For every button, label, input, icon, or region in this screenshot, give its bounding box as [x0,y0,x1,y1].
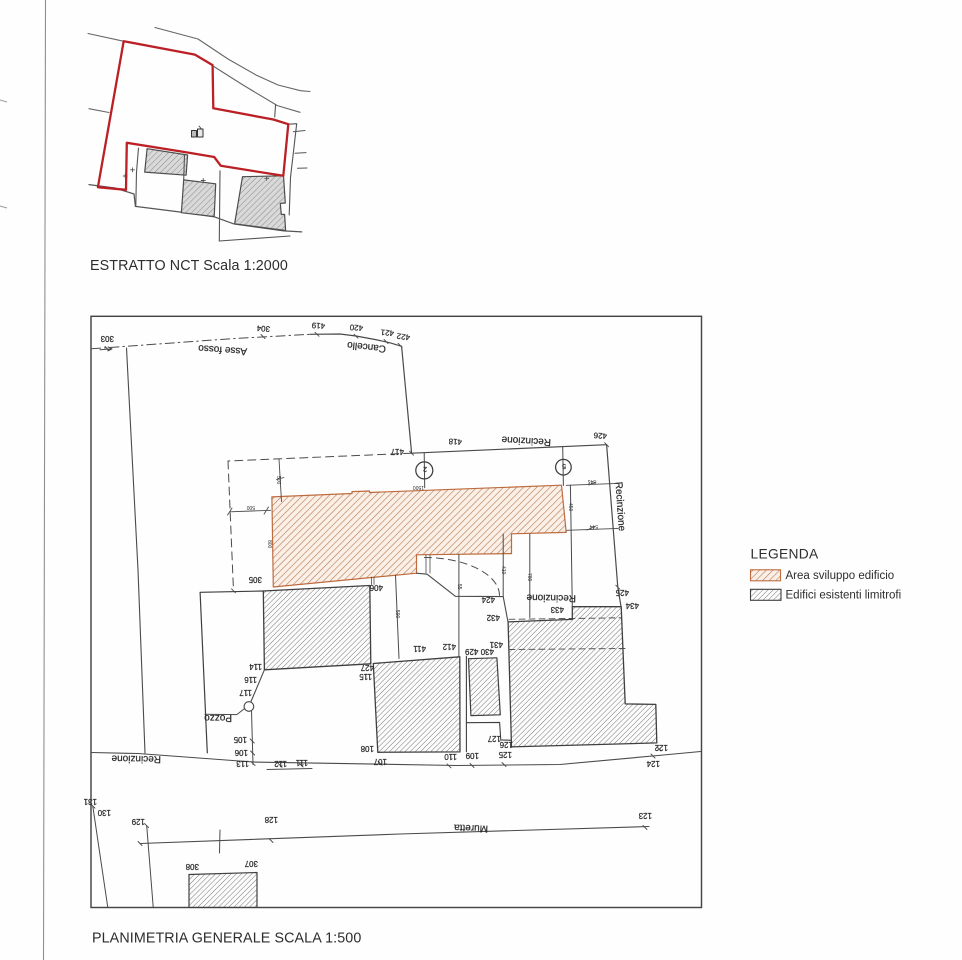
svg-text:425: 425 [615,588,629,597]
svg-text:Edifici esistenti limitrofi: Edifici esistenti limitrofi [786,590,902,602]
svg-text:115: 115 [359,672,372,681]
svg-text:303: 303 [100,334,114,343]
svg-text:304: 304 [256,324,270,334]
svg-text:128: 128 [264,815,278,824]
svg-text:114: 114 [249,662,262,671]
svg-text:123: 123 [638,811,652,820]
svg-text:430 429: 430 429 [465,647,494,656]
svg-text:419: 419 [311,321,325,331]
svg-text:117: 117 [239,688,252,697]
svg-text:107: 107 [373,757,387,766]
svg-text:Recinzione: Recinzione [526,592,576,604]
svg-text:411: 411 [413,644,426,653]
svg-text:424: 424 [481,595,495,604]
svg-text:418: 418 [448,437,462,447]
svg-text:55: 55 [456,584,462,590]
svg-text:406: 406 [369,583,383,592]
svg-text:PLANIMETRIA GENERALE SCALA 1:5: PLANIMETRIA GENERALE SCALA 1:500 [92,931,361,947]
svg-text:800: 800 [266,540,272,549]
svg-text:5: 5 [562,462,566,469]
svg-text:106: 106 [234,748,248,757]
svg-text:Area sviluppo edificio: Area sviluppo edificio [786,570,895,582]
svg-text:500: 500 [246,504,255,510]
svg-text:2: 2 [423,465,427,472]
svg-text:129: 129 [131,817,145,826]
svg-text:426: 426 [593,431,607,441]
svg-text:307: 307 [244,859,258,868]
svg-text:305: 305 [248,575,262,584]
svg-text:590: 590 [394,610,400,619]
svg-text:412: 412 [442,642,456,651]
svg-text:545: 545 [587,478,596,484]
svg-text:500: 500 [275,476,281,485]
svg-text:780: 780 [526,573,532,582]
svg-text:112: 112 [274,759,287,768]
svg-text:127: 127 [487,734,501,743]
svg-text:105: 105 [233,735,247,744]
svg-text:131: 131 [83,797,97,806]
svg-text:ESTRATTO NCT Scala 1:2000: ESTRATTO NCT Scala 1:2000 [90,258,288,274]
svg-text:LEGENDA: LEGENDA [751,547,820,562]
svg-text:544: 544 [589,523,598,529]
svg-text:125: 125 [498,750,512,759]
svg-text:427: 427 [360,663,374,672]
svg-text:Recinzione: Recinzione [111,753,161,765]
svg-text:422: 422 [396,331,411,342]
svg-text:410: 410 [500,566,506,575]
svg-text:108: 108 [360,744,374,753]
svg-text:420: 420 [349,323,363,333]
svg-text:116: 116 [244,675,257,684]
svg-text:130: 130 [97,808,111,817]
svg-text:432: 432 [486,613,500,622]
svg-text:417: 417 [390,447,404,456]
svg-text:124: 124 [646,759,660,768]
svg-text:421: 421 [380,327,395,337]
svg-text:122: 122 [654,743,668,752]
svg-text:450: 450 [567,503,573,512]
svg-text:Pozzo: Pozzo [204,712,232,723]
svg-text:111: 111 [295,758,308,767]
svg-text:308: 308 [185,862,199,871]
svg-text:Muretta: Muretta [453,822,488,834]
svg-text:109: 109 [465,751,479,760]
svg-text:1500: 1500 [413,484,424,490]
svg-text:433: 433 [550,605,564,614]
svg-text:110: 110 [444,752,457,761]
svg-text:434: 434 [625,601,639,610]
svg-text:113: 113 [236,759,249,768]
